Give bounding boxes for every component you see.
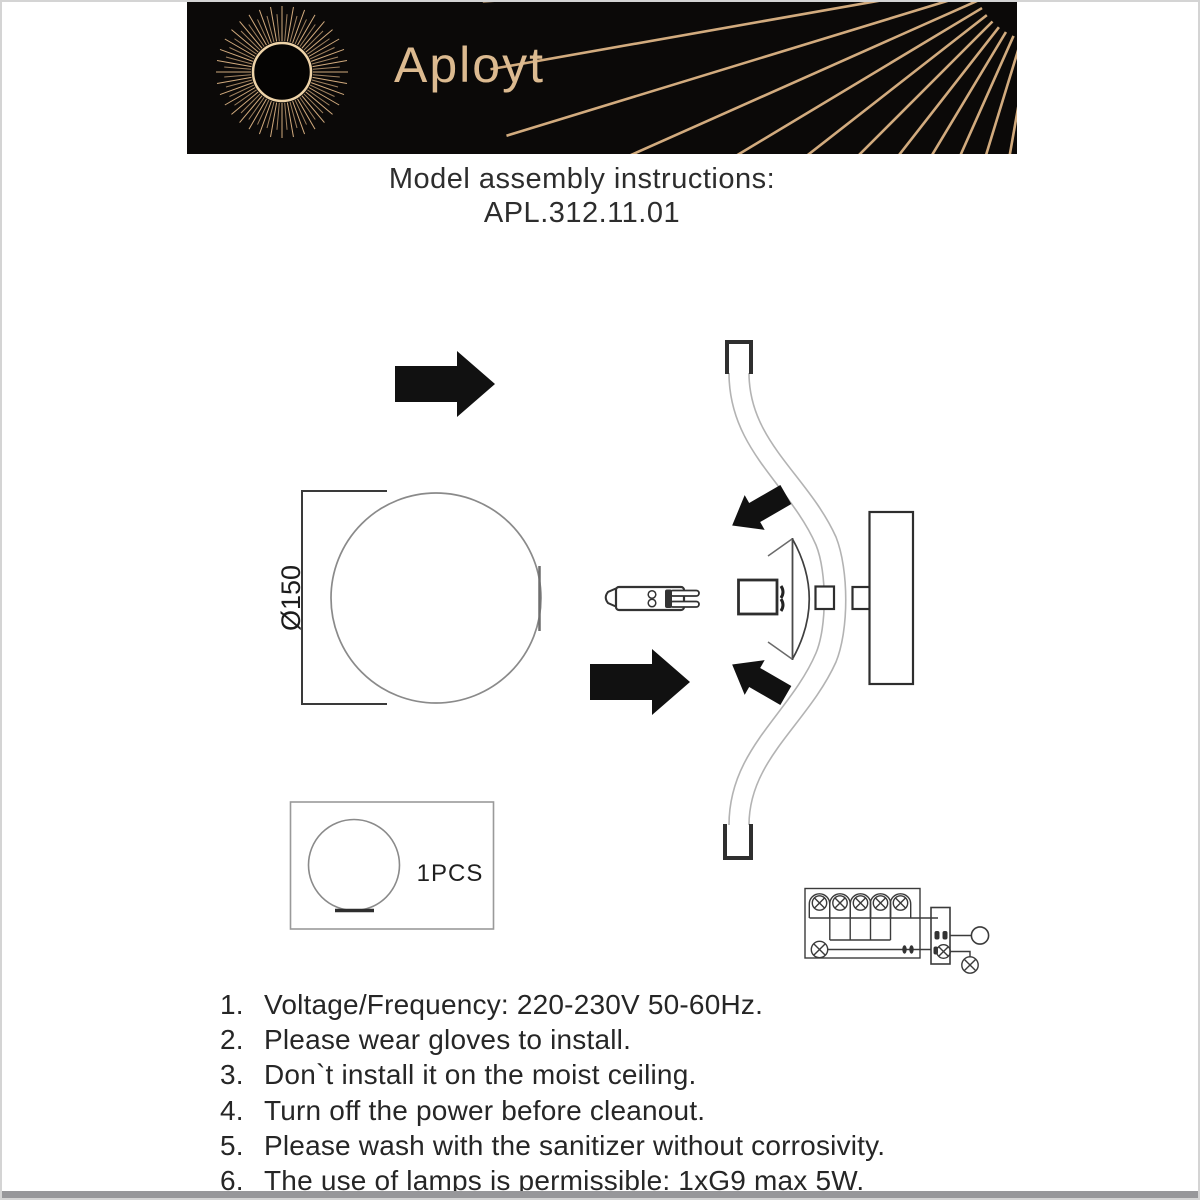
instruction-item: 5. Please wash with the sanitizer withou… [220,1128,885,1163]
instruction-number: 2. [220,1022,264,1057]
glass-profile-arc [793,539,810,659]
instruction-number: 4. [220,1093,264,1128]
step-arrow-right-icon [590,649,690,715]
lamp-face-circle [331,493,541,703]
bulb-pin-bottom [670,602,699,608]
lamp-symbols-row [809,894,910,918]
instruction-item: 3. Don`t install it on the moist ceiling… [220,1057,885,1092]
instruction-item: 1. Voltage/Frequency: 220-230V 50-60Hz. [220,987,885,1022]
bulb-pinch [665,590,672,609]
drop-line [950,952,970,957]
dimension-bracket [302,491,387,704]
instruction-text: Please wash with the sanitizer without c… [264,1128,885,1163]
tube-collar [816,587,835,610]
instruction-sheet: Aployt Model assembly instructions: APL.… [0,0,1200,1200]
lamp-symbol-icon [850,894,870,918]
front-view: Ø150 [276,491,541,704]
lamp-symbol-icon [809,894,829,918]
lamp-symbol-icon [830,894,850,918]
instruction-text: Don`t install it on the moist ceiling. [264,1057,696,1092]
instruction-item: 4. Turn off the power before cleanout. [220,1093,885,1128]
comb-lines [830,918,891,940]
socket-contact-top [781,586,783,598]
instruction-number: 3. [220,1057,264,1092]
bulb-contact-bottom [648,599,656,607]
dimension-label: Ø150 [276,565,306,631]
side-view [722,342,913,858]
lamp-symbol-icon [937,945,951,959]
bulb-contact-top [648,591,656,599]
instruction-text: Voltage/Frequency: 220-230V 50-60Hz. [264,987,763,1022]
mount-boss [853,587,871,609]
tube-top-cap [727,342,751,374]
lamp-symbol-icon [962,957,978,973]
instruction-number: 5. [220,1128,264,1163]
bulb-pin-top [670,591,699,597]
step-arrow-right-icon [395,351,495,417]
wall-plate [870,512,914,684]
lamp-symbol-icon [811,941,827,957]
page-bottom-edge [2,1191,1198,1198]
terminal-contact [943,931,948,940]
instruction-text: Turn off the power before cleanout. [264,1093,705,1128]
socket-contact-bottom [781,599,783,611]
connector-dot [909,945,913,953]
instruction-list: 1. Voltage/Frequency: 220-230V 50-60Hz. … [220,987,885,1198]
instruction-number: 1. [220,987,264,1022]
instruction-text: Please wear gloves to install. [264,1022,631,1057]
lamp-symbol-icon [870,894,890,918]
terminal-contact [935,931,940,940]
instruction-item: 2. Please wear gloves to install. [220,1022,885,1057]
package-box: 1PCS [291,802,494,929]
quantity-label: 1PCS [417,860,484,887]
insert-arrow-down-left-icon [722,477,796,543]
tube-bottom-cap [725,824,751,858]
glass-rim-top [768,539,792,556]
glass-rim-bottom [768,642,792,659]
g9-bulb-drawing [606,587,699,610]
wiring-diagram [805,889,989,974]
lamp-socket [739,580,778,614]
lamp-symbol-icon [890,894,910,918]
switch-circle [971,927,988,944]
connector-dot [902,945,906,953]
